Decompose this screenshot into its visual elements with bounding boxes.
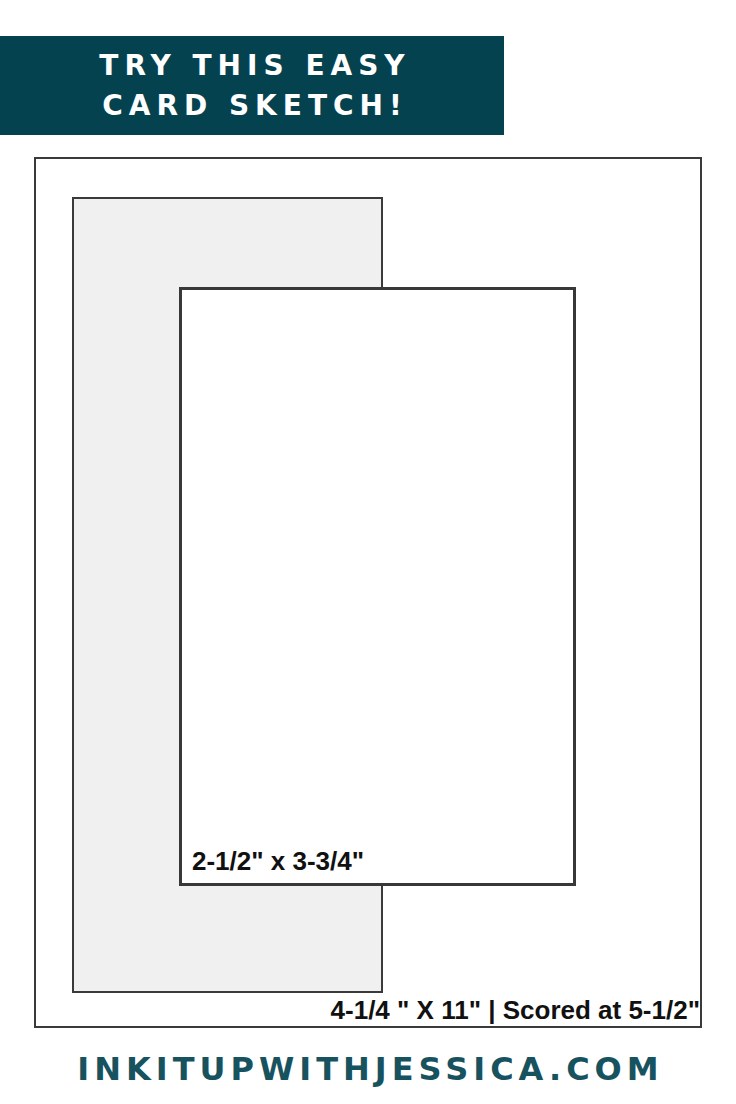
banner-title-line-2: CARD SKETCH!	[96, 86, 408, 126]
card-base-dimensions-label: 4-1/4 " X 11" | Scored at 5-1/2"	[331, 995, 700, 1026]
front-panel: 2-1/2" x 3-3/4"	[179, 287, 576, 886]
website-url: INKITUPWITHJESSICA.COM	[0, 1050, 736, 1088]
banner-title-line-1: TRY THIS EASY	[93, 46, 410, 86]
title-banner: TRY THIS EASY CARD SKETCH!	[0, 36, 504, 135]
card-sketch-pin: TRY THIS EASY CARD SKETCH! 2-1/2" x 3-3/…	[0, 0, 736, 1104]
front-panel-dimensions-label: 2-1/2" x 3-3/4"	[192, 846, 364, 877]
